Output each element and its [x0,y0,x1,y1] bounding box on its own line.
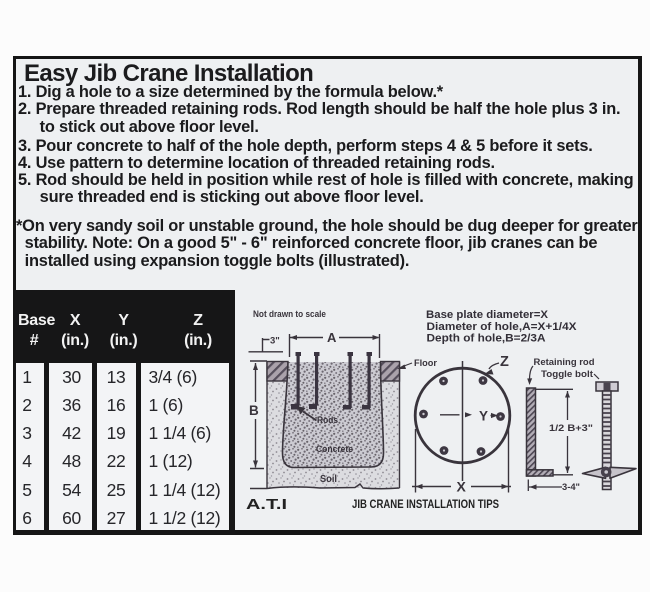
svg-text:Concrete: Concrete [316,444,353,455]
svg-text:Retaining rod: Retaining rod [534,357,595,368]
svg-text:Z: Z [500,354,509,370]
svg-text:3-4": 3-4" [562,482,580,493]
svg-text:Y: Y [479,409,488,424]
svg-text:X: X [457,479,467,495]
svg-text:Soil: Soil [320,473,337,485]
svg-text:Toggle bolt: Toggle bolt [541,369,594,380]
svg-text:1/2 B+3": 1/2 B+3" [549,423,593,434]
svg-text:A: A [327,330,337,345]
svg-text:Rods: Rods [317,415,338,426]
svg-text:Base plate diameter=X: Base plate diameter=X [426,309,549,321]
svg-text:A.T.I: A.T.I [246,497,287,513]
svg-text:B: B [249,403,259,418]
svg-text:Diameter of hole,A=X+1/4X: Diameter of hole,A=X+1/4X [427,321,578,333]
svg-text:3": 3" [270,336,280,347]
svg-text:Not drawn to scale: Not drawn to scale [253,309,326,319]
svg-text:JIB CRANE INSTALLATION TIPS: JIB CRANE INSTALLATION TIPS [352,499,499,511]
svg-text:Depth of hole,B=2/3A: Depth of hole,B=2/3A [427,333,546,345]
svg-text:Floor: Floor [414,358,437,369]
